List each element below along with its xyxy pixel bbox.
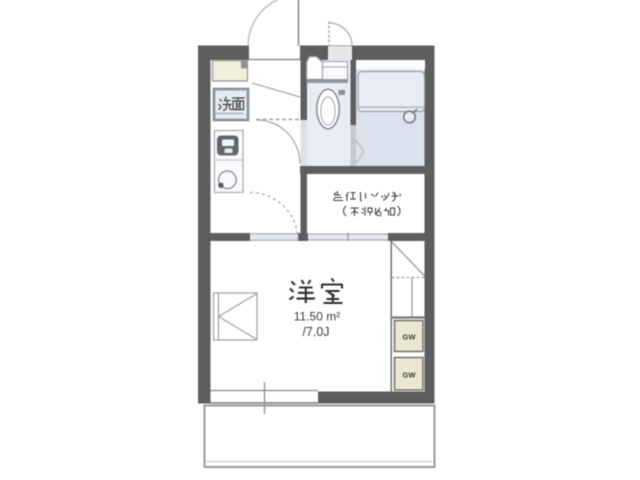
svg-text:GW: GW: [403, 371, 417, 380]
svg-text:/7.0J: /7.0J: [302, 325, 329, 339]
svg-text:GW: GW: [403, 333, 417, 342]
svg-text:11.50 m²: 11.50 m²: [294, 310, 340, 324]
